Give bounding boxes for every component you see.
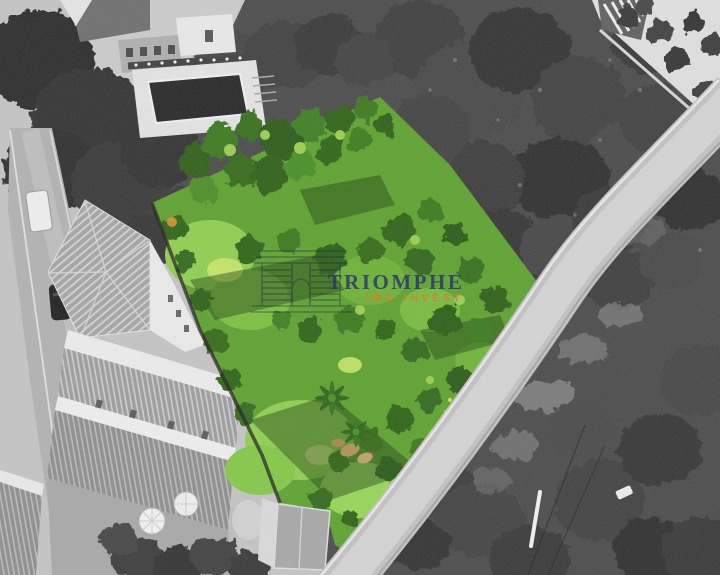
aerial-photo: TRIOMPHE IMO INVEST — [0, 0, 720, 575]
photo-grain-overlay — [0, 0, 720, 575]
